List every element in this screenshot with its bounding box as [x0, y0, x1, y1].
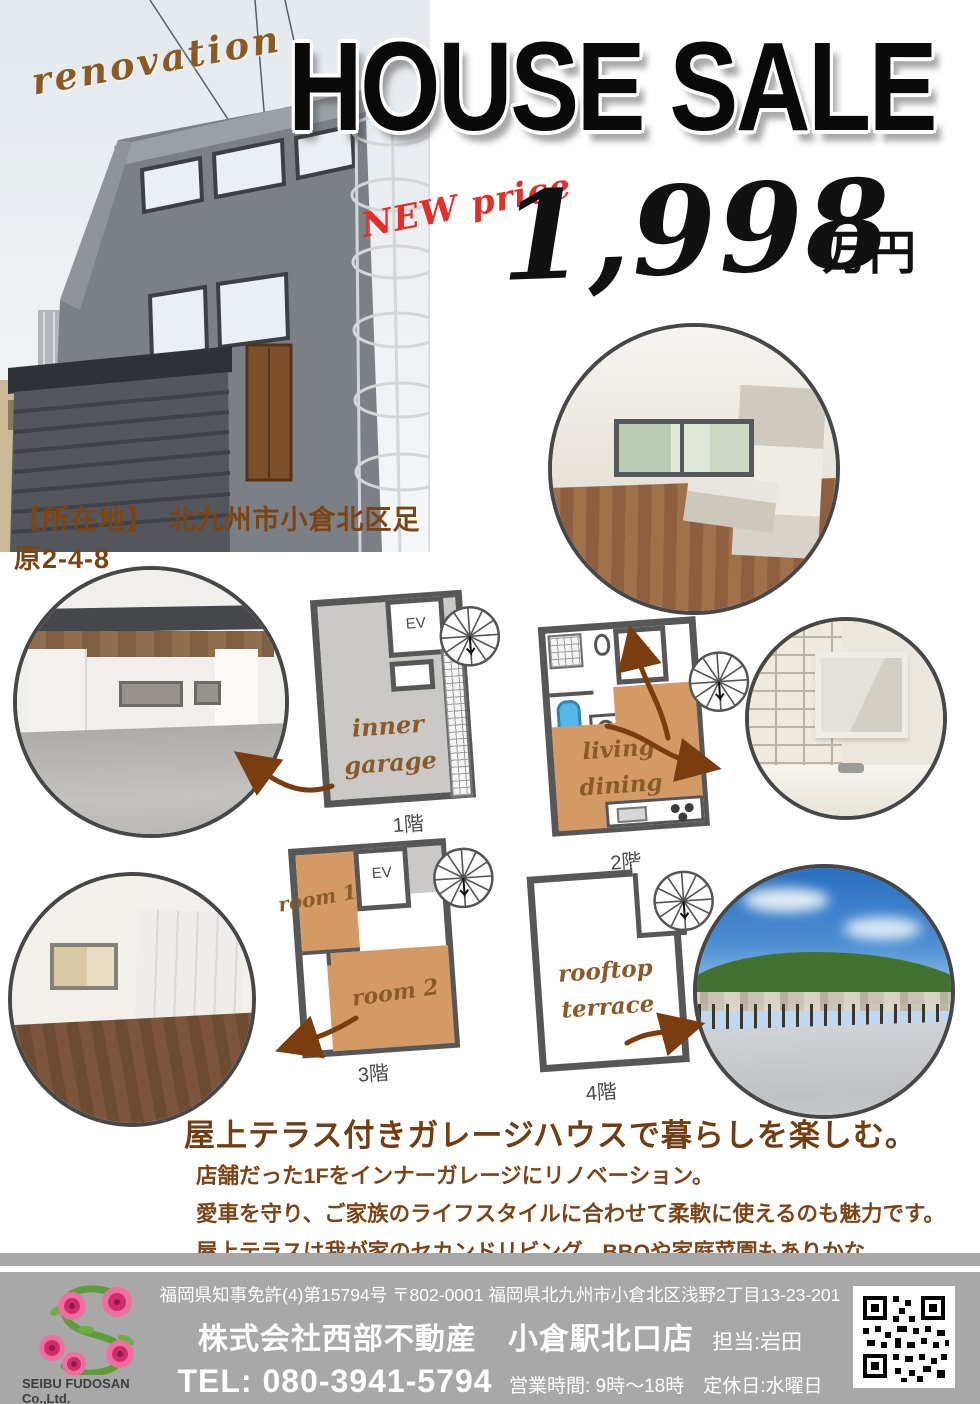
property-location: 【所在地】 北九州市小倉北区足原2-4-8 — [14, 498, 434, 576]
elevator-room-3f: EV — [353, 846, 411, 912]
spiral-stairs-icon-1f — [435, 601, 505, 671]
floor-plan-2f: EV living dining 2階 — [531, 605, 759, 879]
company-logo: SEIBU FUDOSAN Co.,Ltd. — [22, 1280, 162, 1398]
bedroom-photo — [8, 872, 256, 1127]
phone-number: TEL: 080-3941-5794 — [177, 1363, 492, 1399]
description-line: 店舗だった1Fをインナーガレージにリノベーション。 — [196, 1157, 945, 1195]
floor-label-3f: 3階 — [357, 1057, 390, 1088]
elevator-label-1f: EV — [391, 613, 440, 633]
elevator-label-3f: EV — [359, 863, 404, 883]
qr-code — [853, 1286, 955, 1388]
room-label-inner-garage: inner garage — [332, 703, 447, 785]
price-unit: 万円 — [822, 214, 916, 283]
business-hours: 営業時間: 9時〜18時 定休日:水曜日 — [509, 1376, 823, 1397]
divider-bar — [0, 1253, 980, 1266]
description-line: 愛車を守り、ご家族のライフスタイルに合わせて柔軟に使えるのも魅力です。 — [196, 1195, 945, 1233]
footer: SEIBU FUDOSAN Co.,Ltd. 福岡県知事免許(4)第15794号… — [0, 1272, 980, 1404]
washbasin-photo — [745, 617, 947, 820]
elevator-room-2f: EV — [613, 625, 669, 684]
company-line: 株式会社西部不動産 小倉駅北口店 担当:岩田 — [150, 1314, 850, 1358]
flyer-page: 【所在地】 北九州市小倉北区足原2-4-8 renovation HOUSE S… — [0, 0, 980, 1404]
footer-contact-block: 福岡県知事免許(4)第15794号 〒802-0001 福岡県北九州市小倉北区浅… — [150, 1282, 850, 1400]
inner-garage-photo — [13, 566, 289, 838]
page-title: HOUSE SALE — [288, 14, 837, 159]
tel-line: TEL: 080-3941-5794 営業時間: 9時〜18時 定休日:水曜日 — [150, 1363, 850, 1400]
logo-flower-s-icon — [22, 1280, 162, 1375]
catch-copy-headline: 屋上テラス付きガレージハウスで暮らしを楽しむ。 — [184, 1110, 917, 1155]
room-label-living-dining: living dining — [557, 728, 682, 807]
living-dining-photo — [548, 323, 840, 615]
license-and-address: 福岡県知事免許(4)第15794号 〒802-0001 福岡県北九州市小倉北区浅… — [150, 1282, 850, 1307]
elevator-label-2f: EV — [619, 643, 662, 663]
floor-plan-4f: rooftop terrace 4階 — [520, 853, 736, 1106]
toilet-icon — [593, 633, 610, 656]
spiral-stairs-icon-3f — [428, 843, 498, 913]
agent-name: 担当:岩田 — [712, 1331, 802, 1354]
floor-plan-1f: EV inner garage 1階 — [292, 581, 519, 845]
floor-label-4f: 4階 — [585, 1075, 618, 1106]
spiral-stairs-icon-4f — [648, 866, 718, 936]
spiral-stairs-icon-2f — [684, 646, 754, 716]
company-name: 株式会社西部不動産 小倉駅北口店 — [198, 1323, 694, 1356]
room-label-rooftop-terrace: rooftop terrace — [544, 949, 669, 1028]
floor-plan-3f: EV room 1 room 2 3階 — [280, 829, 507, 1093]
